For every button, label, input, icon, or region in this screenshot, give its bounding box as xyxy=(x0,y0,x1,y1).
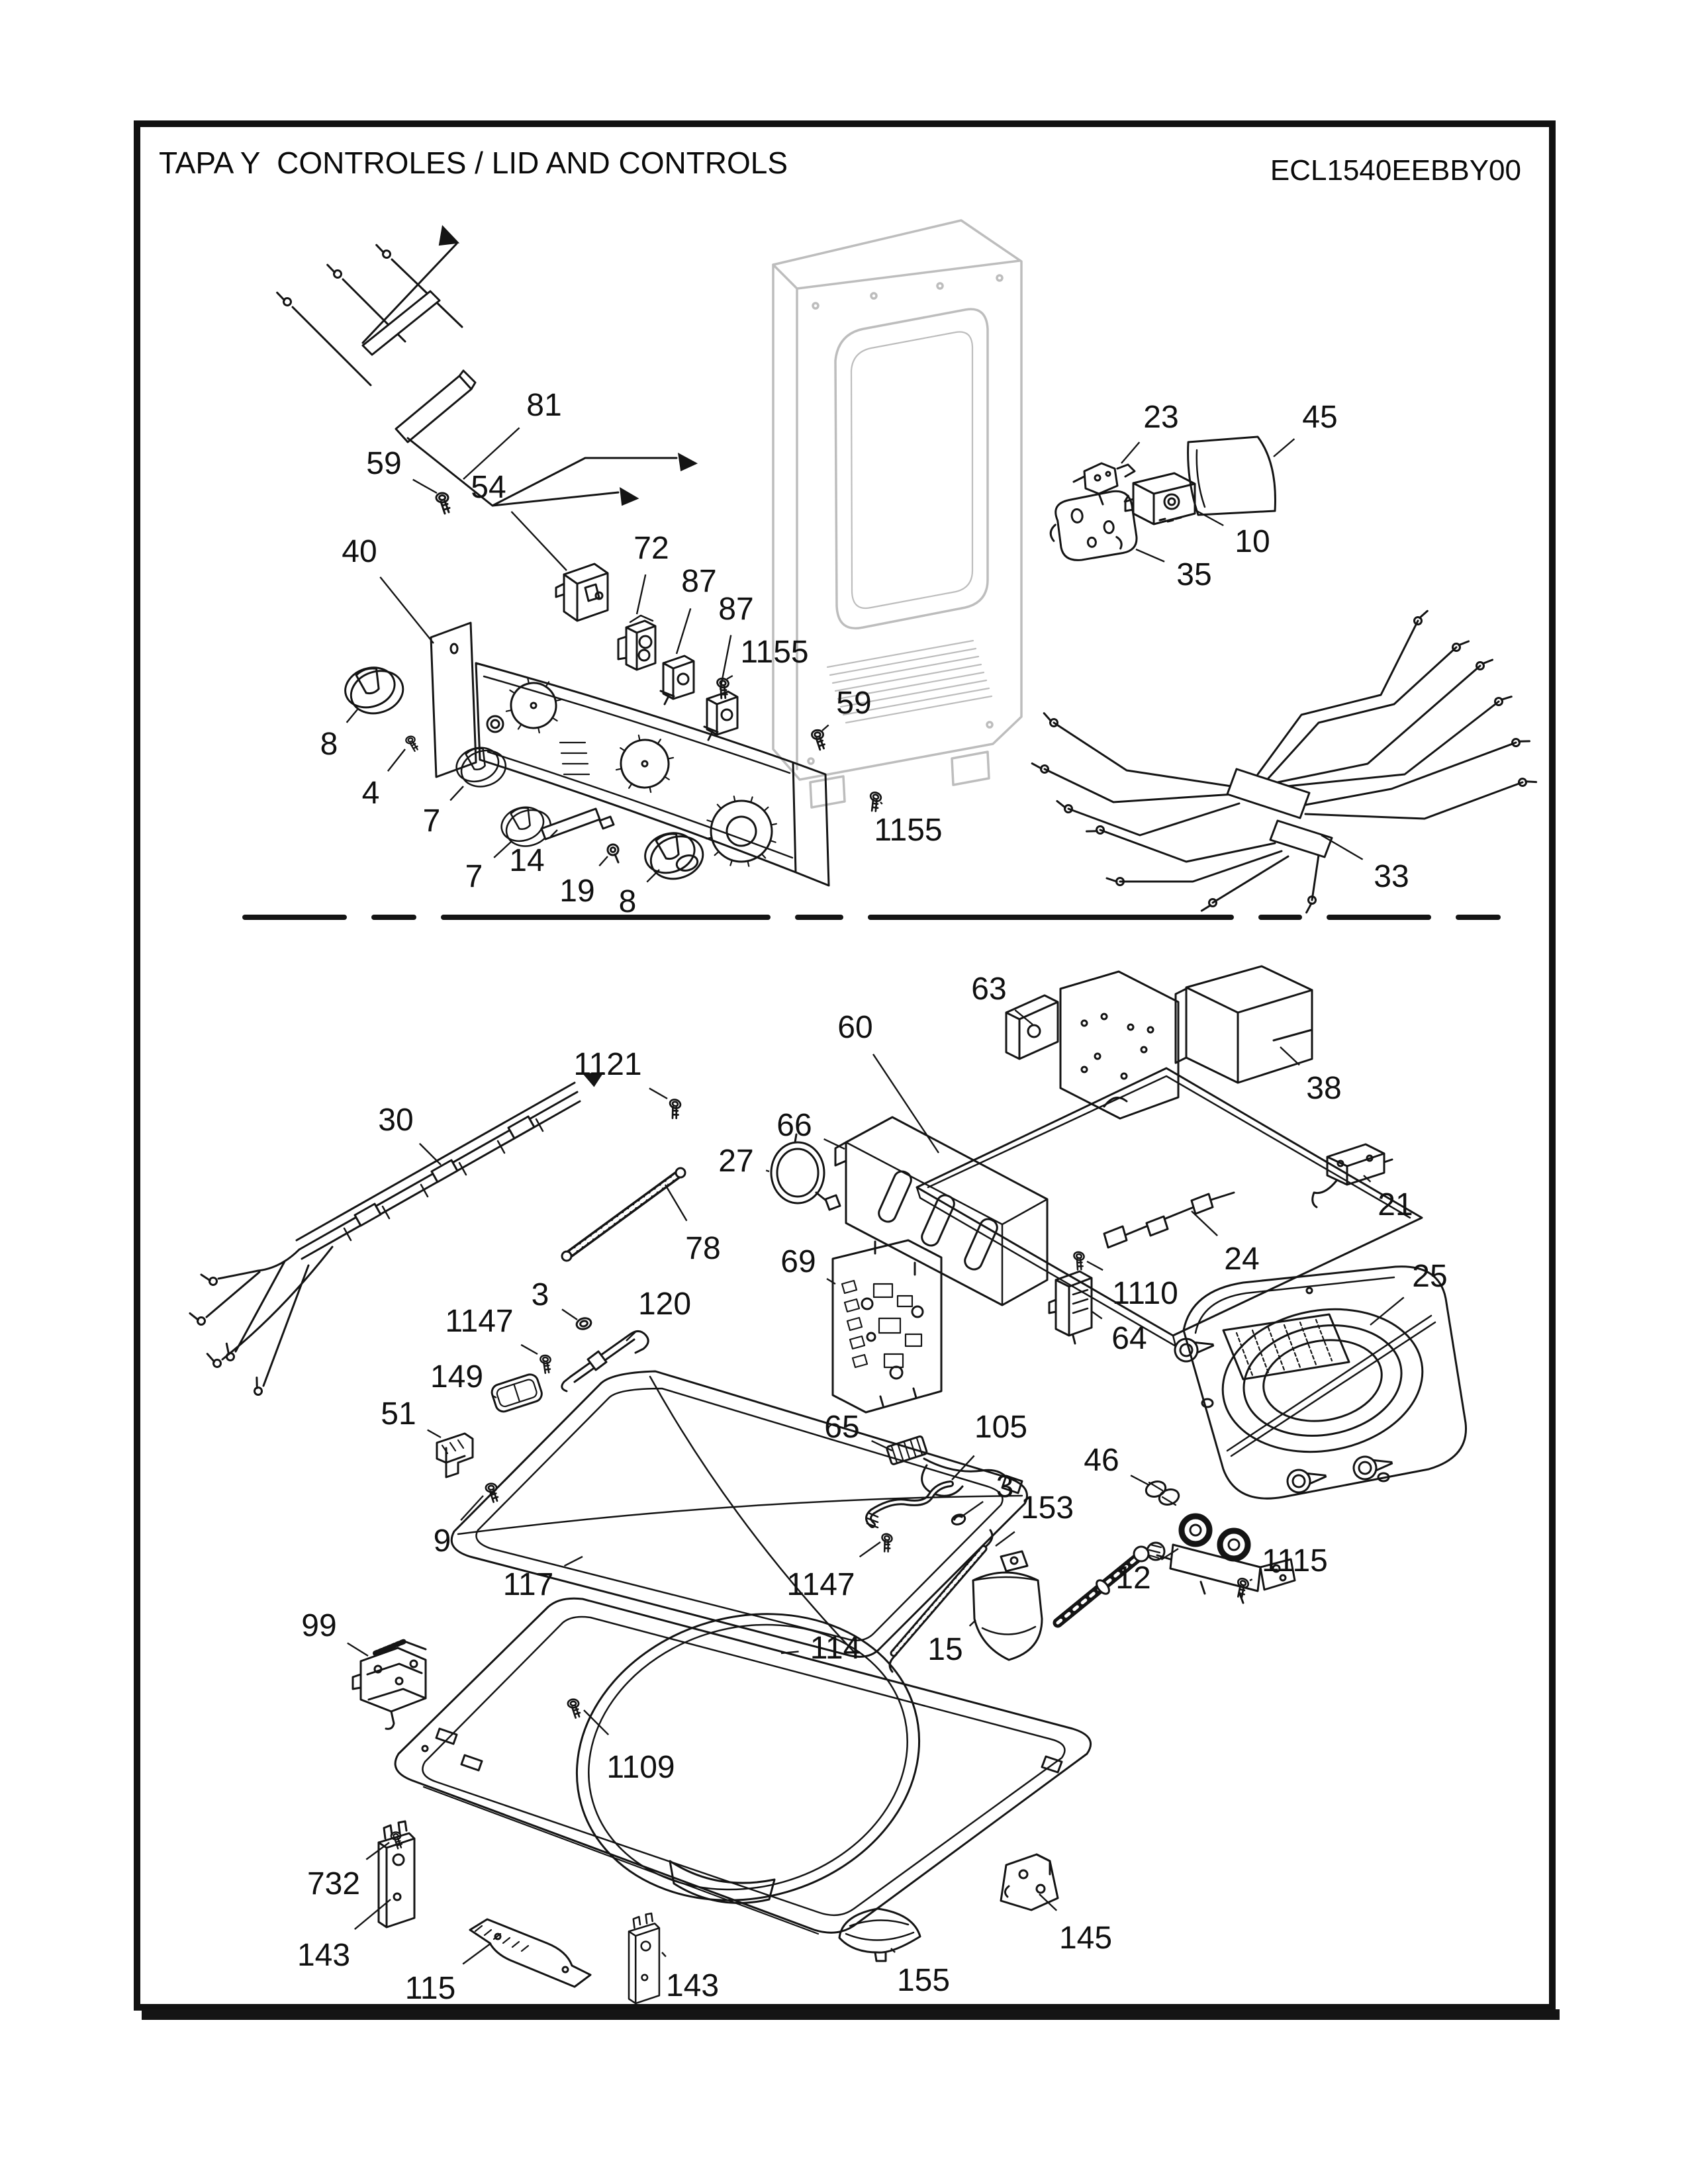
part-callout-38-23: 38 xyxy=(1306,1071,1341,1106)
part-callout-114-51: 114 xyxy=(810,1631,861,1666)
part-callout-69-40: 69 xyxy=(780,1244,816,1279)
part-callout-153-44: 153 xyxy=(1021,1490,1074,1525)
part-callout-15-60: 15 xyxy=(927,1632,962,1667)
model-number: ECL1540EEBBY00 xyxy=(1270,154,1521,187)
part-callout-14-13: 14 xyxy=(509,843,544,878)
part-callout-19-14: 19 xyxy=(559,874,594,909)
part-callout-78-29: 78 xyxy=(685,1231,720,1266)
part-callout-59-8: 59 xyxy=(836,686,871,721)
part-callout-35-20: 35 xyxy=(1176,557,1211,592)
part-callout-145-59: 145 xyxy=(1059,1921,1112,1956)
part-callout-9-48: 9 xyxy=(434,1524,451,1559)
part-callout-12-46: 12 xyxy=(1115,1561,1150,1596)
part-callout-732-53: 732 xyxy=(307,1866,360,1901)
part-callout-1155-7: 1155 xyxy=(740,635,808,670)
part-callout-10-19: 10 xyxy=(1235,524,1270,559)
parts-diagram-canvas: TAPA Y CONTROLES / LID AND CONTROLS ECL1… xyxy=(0,0,1688,2184)
part-callout-63-22: 63 xyxy=(971,972,1006,1007)
part-callout-27-28: 27 xyxy=(718,1144,753,1179)
part-callout-40-3: 40 xyxy=(342,534,377,569)
page-frame-shadow xyxy=(142,2009,1560,2020)
part-callout-1155-16: 1155 xyxy=(874,813,942,848)
part-callout-33-21: 33 xyxy=(1374,859,1409,894)
part-callout-117-49: 117 xyxy=(503,1567,554,1602)
part-callout-115-56: 115 xyxy=(405,1971,456,2006)
part-callout-87-5: 87 xyxy=(681,564,716,599)
leader-1115-47 xyxy=(1250,1579,1252,1580)
part-callout-24-31: 24 xyxy=(1224,1242,1259,1277)
part-callout-143-57: 143 xyxy=(666,1968,719,2003)
part-callout-8-9: 8 xyxy=(320,727,338,762)
part-callout-59-1: 59 xyxy=(366,446,401,481)
part-callout-66-27: 66 xyxy=(776,1108,812,1143)
page-background xyxy=(0,0,1688,2184)
part-callout-1110-32: 1110 xyxy=(1112,1276,1178,1311)
part-callout-30-26: 30 xyxy=(378,1103,413,1138)
part-callout-25-34: 25 xyxy=(1412,1259,1447,1294)
part-callout-72-4: 72 xyxy=(633,531,669,566)
part-callout-87-6: 87 xyxy=(718,592,753,627)
part-callout-65-41: 65 xyxy=(824,1410,859,1445)
part-callout-1121-25: 1121 xyxy=(573,1047,641,1082)
part-callout-60-24: 60 xyxy=(837,1010,872,1045)
part-callout-3-35: 3 xyxy=(532,1277,549,1312)
part-callout-4-10: 4 xyxy=(362,776,380,811)
part-callout-99-52: 99 xyxy=(301,1608,336,1643)
leader-27-28 xyxy=(766,1171,769,1172)
part-callout-7-11: 7 xyxy=(423,803,441,839)
part-callout-155-58: 155 xyxy=(897,1963,950,1998)
part-callout-149-38: 149 xyxy=(430,1359,483,1394)
part-callout-46-45: 46 xyxy=(1084,1443,1119,1478)
part-callout-1147-36: 1147 xyxy=(445,1304,513,1339)
part-callout-1109-54: 1109 xyxy=(606,1750,675,1785)
part-callout-51-39: 51 xyxy=(381,1396,416,1432)
part-callout-8-15: 8 xyxy=(619,884,637,919)
part-callout-105-42: 105 xyxy=(974,1410,1027,1445)
part-callout-21-30: 21 xyxy=(1378,1187,1413,1222)
part-callout-1147-50: 1147 xyxy=(786,1567,855,1602)
part-callout-1115-47: 1115 xyxy=(1262,1543,1328,1578)
part-callout-23-17: 23 xyxy=(1143,400,1178,435)
part-callout-64-33: 64 xyxy=(1111,1321,1147,1356)
part-callout-120-37: 120 xyxy=(638,1287,691,1322)
page-title: TAPA Y CONTROLES / LID AND CONTROLS xyxy=(159,146,788,180)
part-callout-3-43: 3 xyxy=(996,1469,1014,1504)
part-callout-7-12: 7 xyxy=(465,859,483,894)
part-callout-81-0: 81 xyxy=(526,388,561,423)
part-callout-45-18: 45 xyxy=(1302,400,1337,435)
part-callout-143-55: 143 xyxy=(297,1938,350,1973)
part-callout-54-2: 54 xyxy=(471,470,506,505)
